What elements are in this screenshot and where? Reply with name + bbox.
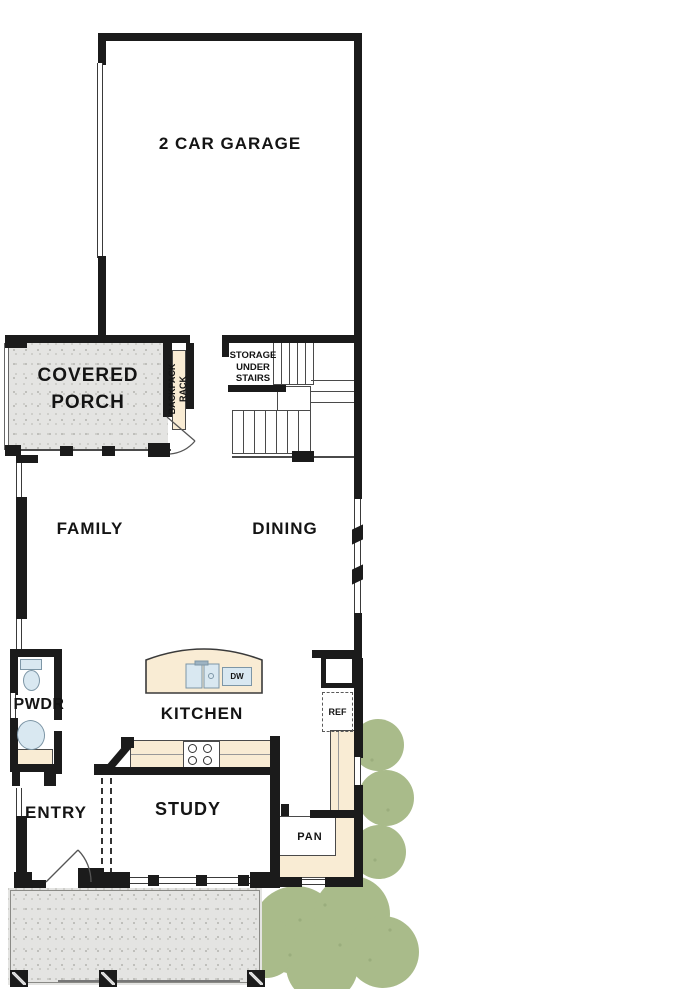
cased-opening xyxy=(110,778,112,874)
room-label-kitchen: KITCHEN xyxy=(140,704,264,724)
backpack-rack-label: BACKPACK RACK xyxy=(167,345,193,433)
wall-segment xyxy=(98,33,106,65)
room-label-garage: 2 CAR GARAGE xyxy=(98,134,362,154)
wall-segment xyxy=(354,33,362,499)
porch-post xyxy=(196,875,207,886)
wall-segment xyxy=(5,335,171,343)
cooktop-burner xyxy=(188,756,197,765)
wall-segment xyxy=(310,810,362,818)
porch-post xyxy=(148,443,170,457)
wall-corner xyxy=(16,455,38,463)
wall-segment xyxy=(292,451,314,462)
porch-post xyxy=(238,875,249,886)
room-label-covered-porch-2: PORCH xyxy=(18,392,158,414)
wall-corner xyxy=(5,335,27,348)
wall-corner xyxy=(104,872,130,888)
wall-segment xyxy=(10,764,58,772)
porch-column xyxy=(99,970,117,987)
porch-post xyxy=(148,875,159,886)
window-opening xyxy=(302,879,325,885)
front-porch-edge xyxy=(10,890,260,983)
room-label-covered-porch-1: COVERED xyxy=(18,365,158,387)
wall-segment xyxy=(354,785,363,887)
room-label-powder: PWDR xyxy=(10,696,68,714)
room-label-entry: ENTRY xyxy=(20,803,92,823)
wall-corner xyxy=(250,872,280,888)
cooktop-burner xyxy=(203,756,212,765)
wall-segment xyxy=(16,816,27,874)
cooktop-burner xyxy=(188,744,197,753)
porch-column xyxy=(247,970,265,987)
wall-segment xyxy=(16,497,27,619)
refrigerator: REF xyxy=(322,692,353,732)
wall-segment xyxy=(222,335,362,343)
room-label-family: FAMILY xyxy=(30,519,150,539)
wall-segment xyxy=(98,256,106,343)
porch-step-line xyxy=(58,980,240,982)
counter-line xyxy=(338,731,339,811)
porch-post xyxy=(60,446,73,456)
dishwasher: DW xyxy=(222,667,252,686)
wall-segment xyxy=(10,657,18,695)
floor-plan: 2 CAR GARAGE COVERED PORCH BACKPACK RACK… xyxy=(0,0,688,989)
toilet-bowl xyxy=(23,670,40,691)
wall-segment xyxy=(44,772,56,786)
window-opening xyxy=(354,499,361,613)
wall-segment xyxy=(10,718,18,766)
storage-under-stairs-label: STORAGE UNDER STAIRS xyxy=(224,350,282,385)
room-label-dining: DINING xyxy=(225,519,345,539)
porch-post xyxy=(102,446,115,456)
room-label-study: STUDY xyxy=(130,799,246,820)
window-opening xyxy=(16,619,22,649)
wall-segment xyxy=(325,877,362,887)
wall-corner xyxy=(78,868,104,888)
garage-door-opening xyxy=(97,63,103,258)
room-label-pantry: PAN xyxy=(294,831,326,843)
wall-segment xyxy=(98,33,362,41)
wall-segment xyxy=(270,736,280,888)
porch-column xyxy=(10,970,28,987)
porch-line xyxy=(5,449,171,451)
wall-segment xyxy=(106,767,272,775)
porch-edge-line xyxy=(4,343,9,450)
window-opening xyxy=(354,757,361,785)
wall-segment xyxy=(12,772,20,786)
toilet-tank xyxy=(20,659,42,670)
cased-opening xyxy=(101,778,103,874)
cabinet-nook xyxy=(321,654,357,688)
window-opening xyxy=(16,463,22,497)
wall-segment xyxy=(16,880,46,888)
cooktop-burner xyxy=(203,744,212,753)
wall-segment xyxy=(281,804,289,816)
wall-segment xyxy=(228,385,286,392)
